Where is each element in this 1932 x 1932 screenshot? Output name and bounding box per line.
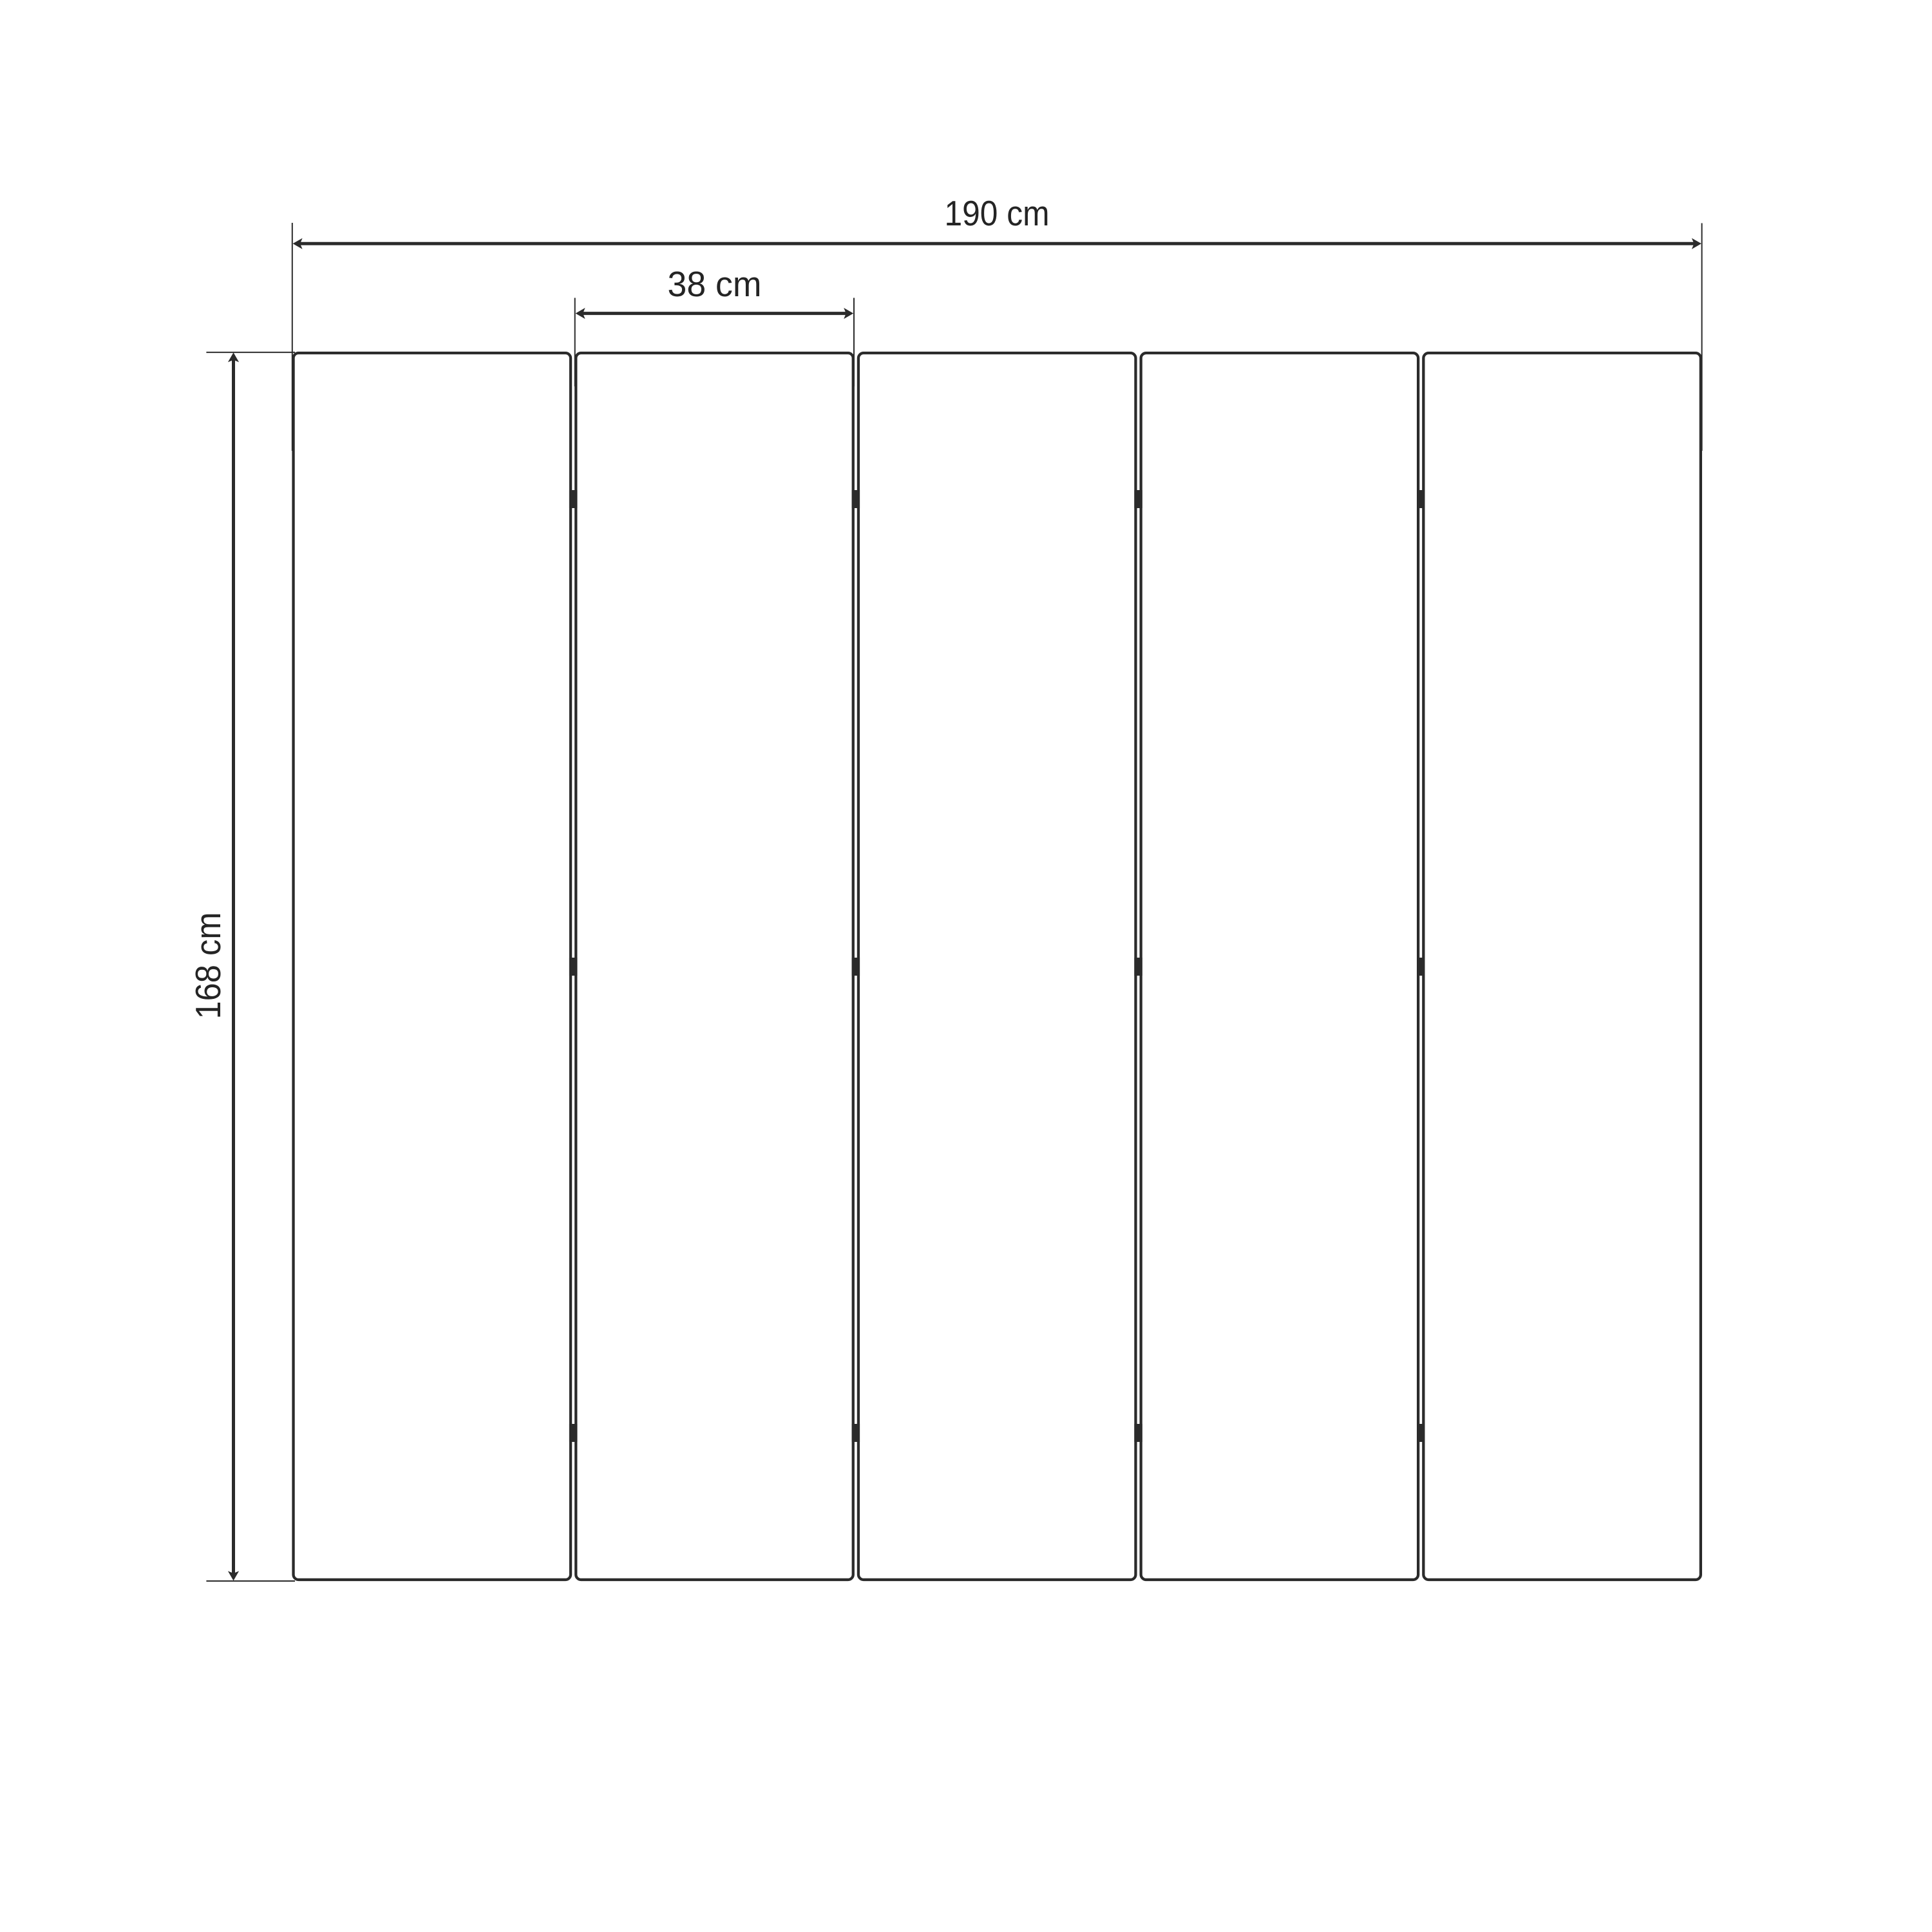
svg-text:38 cm: 38 cm <box>668 264 762 304</box>
svg-text:190 cm: 190 cm <box>945 193 1050 233</box>
svg-text:168 cm: 168 cm <box>188 913 228 1019</box>
